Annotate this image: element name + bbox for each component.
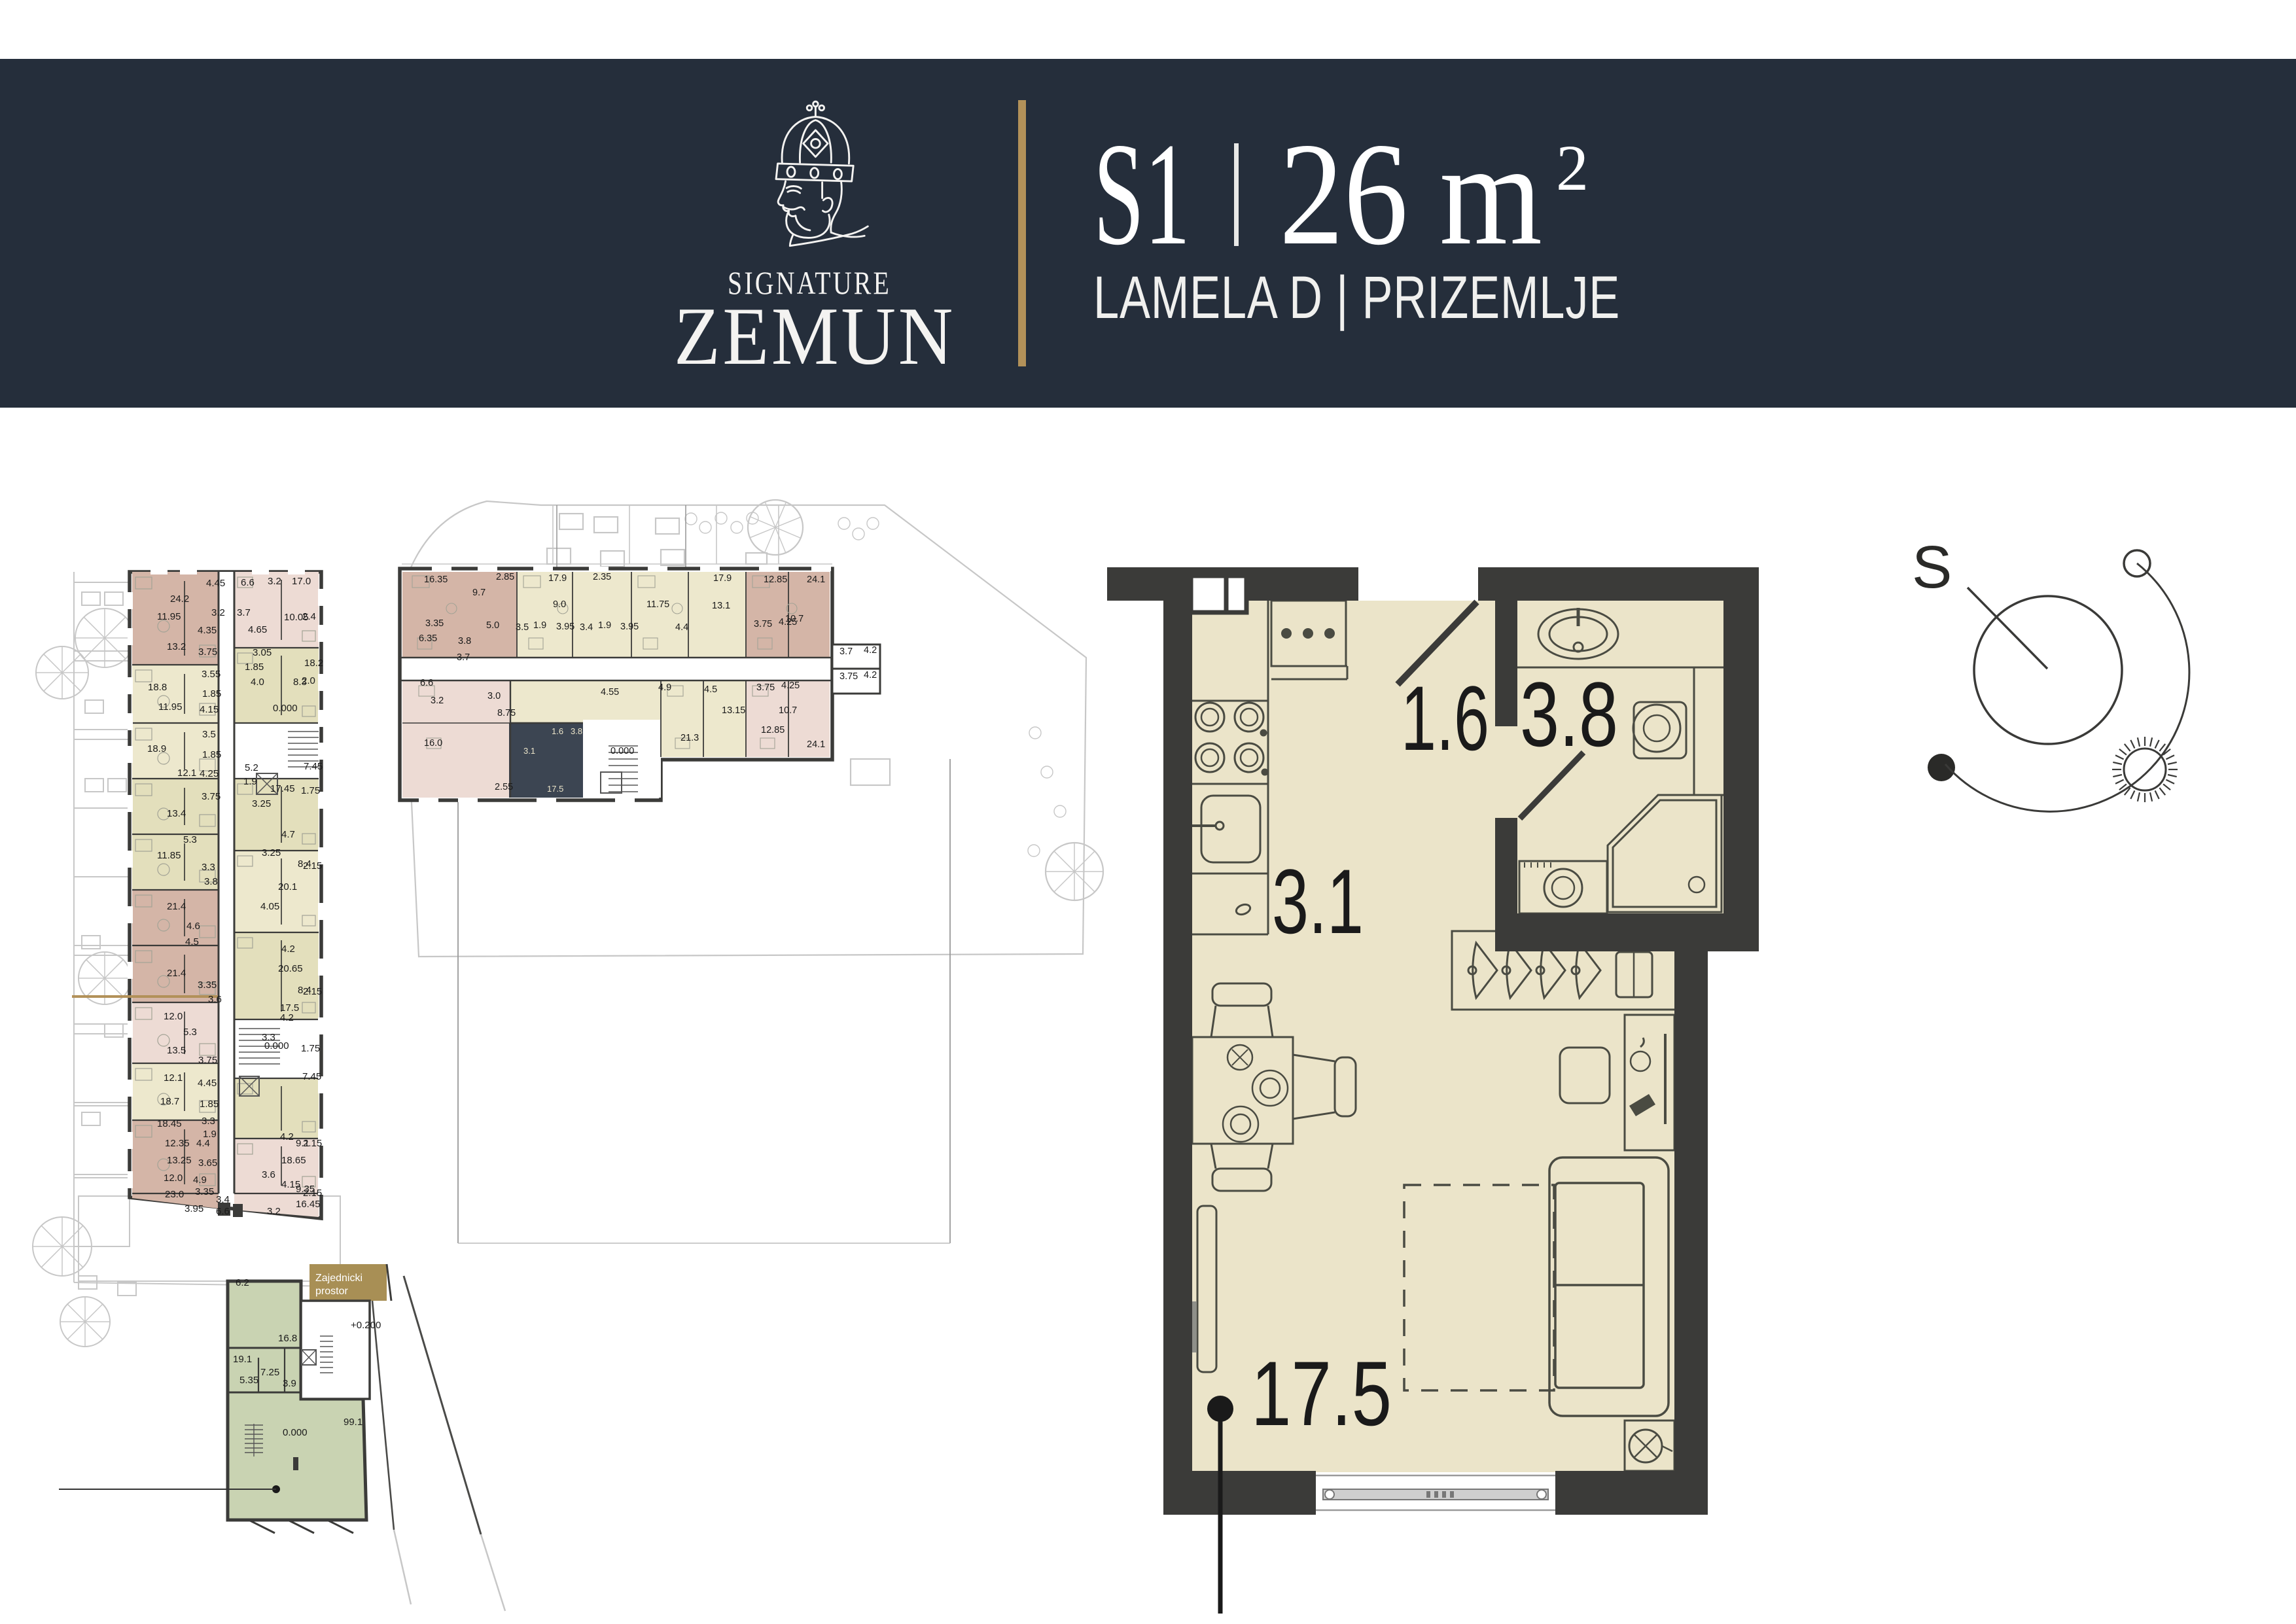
svg-text:3.8: 3.8 — [571, 726, 582, 736]
svg-text:3.35: 3.35 — [195, 1186, 214, 1197]
svg-text:17.0: 17.0 — [292, 576, 311, 587]
svg-text:10.7: 10.7 — [779, 705, 797, 716]
svg-text:3.35: 3.35 — [425, 618, 444, 629]
svg-text:19.1: 19.1 — [233, 1354, 252, 1365]
svg-text:3.4: 3.4 — [580, 622, 593, 633]
svg-text:7.25: 7.25 — [260, 1367, 279, 1378]
svg-text:2.15: 2.15 — [303, 986, 322, 997]
svg-text:13.4: 13.4 — [167, 808, 186, 819]
svg-text:prostor: prostor — [315, 1286, 348, 1297]
svg-text:4.2: 4.2 — [864, 645, 877, 656]
svg-text:5.0: 5.0 — [486, 620, 499, 631]
svg-text:13.2: 13.2 — [167, 641, 186, 652]
svg-text:16.45: 16.45 — [296, 1199, 321, 1210]
svg-text:12.35: 12.35 — [165, 1138, 190, 1149]
svg-text:17.5: 17.5 — [280, 1002, 299, 1014]
svg-text:18.7: 18.7 — [160, 1096, 179, 1107]
svg-text:8.75: 8.75 — [497, 708, 516, 718]
svg-text:3.3: 3.3 — [202, 1116, 215, 1127]
svg-text:4.9: 4.9 — [658, 682, 671, 693]
svg-text:3.25: 3.25 — [252, 798, 271, 809]
svg-text:3.6: 3.6 — [262, 1169, 275, 1180]
svg-text:3.2: 3.2 — [431, 696, 444, 706]
svg-text:3.95: 3.95 — [620, 622, 639, 632]
svg-text:9.7: 9.7 — [472, 588, 486, 598]
svg-text:4.9: 4.9 — [193, 1174, 207, 1186]
svg-text:4.0: 4.0 — [251, 677, 264, 688]
svg-text:3.9: 3.9 — [283, 1378, 296, 1389]
svg-text:3.95: 3.95 — [556, 622, 574, 632]
svg-text:3.6: 3.6 — [208, 994, 222, 1005]
svg-text:3.3: 3.3 — [202, 862, 215, 873]
svg-text:3.75: 3.75 — [756, 682, 775, 693]
svg-text:Zajednicki: Zajednicki — [315, 1273, 362, 1284]
svg-text:3.1: 3.1 — [1272, 850, 1364, 953]
svg-text:S1: S1 — [1093, 112, 1190, 275]
svg-text:2: 2 — [1556, 132, 1589, 204]
svg-text:LAMELA D | PRIZEMLJE: LAMELA D | PRIZEMLJE — [1093, 264, 1620, 331]
svg-text:3.65: 3.65 — [198, 1157, 217, 1169]
svg-text:4.2: 4.2 — [280, 1131, 294, 1142]
svg-text:0.000: 0.000 — [273, 703, 298, 714]
svg-text:12.0: 12.0 — [164, 1173, 183, 1184]
svg-text:3.4: 3.4 — [216, 1194, 230, 1205]
svg-text:3.2: 3.2 — [267, 1206, 281, 1217]
svg-text:12.85: 12.85 — [764, 574, 787, 585]
svg-text:4.45: 4.45 — [198, 1078, 217, 1089]
svg-text:2.85: 2.85 — [496, 572, 514, 582]
svg-text:18.65: 18.65 — [281, 1155, 306, 1166]
svg-text:1.6: 1.6 — [552, 726, 563, 736]
svg-text:4.2: 4.2 — [280, 1012, 294, 1023]
svg-text:18.9: 18.9 — [147, 743, 166, 754]
svg-text:m: m — [1439, 112, 1542, 275]
svg-text:3.05: 3.05 — [253, 647, 272, 658]
svg-text:2.15: 2.15 — [303, 860, 322, 872]
svg-text:20.1: 20.1 — [278, 881, 297, 892]
svg-text:13.25: 13.25 — [167, 1155, 192, 1166]
svg-text:5.35: 5.35 — [239, 1375, 258, 1386]
svg-text:1.85: 1.85 — [202, 688, 221, 699]
svg-text:16.35: 16.35 — [424, 574, 448, 585]
svg-text:S: S — [1912, 534, 1952, 601]
svg-text:4.2: 4.2 — [864, 670, 877, 680]
svg-text:0.000: 0.000 — [610, 746, 634, 756]
svg-text:24.1: 24.1 — [807, 739, 825, 750]
svg-text:ZEMUN: ZEMUN — [674, 291, 955, 382]
svg-text:12.1: 12.1 — [164, 1072, 183, 1084]
svg-text:3.7: 3.7 — [839, 646, 853, 657]
svg-text:4.35: 4.35 — [198, 625, 217, 636]
svg-text:5.3: 5.3 — [183, 834, 197, 845]
svg-text:4.7: 4.7 — [281, 829, 295, 840]
svg-text:3.1: 3.1 — [523, 746, 535, 756]
svg-text:3.7: 3.7 — [457, 652, 470, 663]
svg-text:4.05: 4.05 — [260, 901, 279, 912]
svg-text:2.15: 2.15 — [303, 1138, 322, 1149]
svg-text:3.95: 3.95 — [185, 1203, 203, 1214]
svg-text:1.85: 1.85 — [200, 1099, 219, 1110]
svg-text:3.0: 3.0 — [487, 691, 501, 701]
svg-text:3.35: 3.35 — [198, 980, 217, 991]
svg-text:7.45: 7.45 — [302, 1071, 321, 1082]
svg-text:6.6: 6.6 — [216, 1206, 230, 1217]
svg-text:1.9: 1.9 — [243, 776, 257, 787]
svg-text:4.5: 4.5 — [185, 936, 199, 947]
svg-text:4.25: 4.25 — [200, 768, 219, 779]
svg-text:3.8: 3.8 — [1520, 663, 1618, 766]
svg-text:3.75: 3.75 — [839, 671, 858, 682]
svg-text:16.8: 16.8 — [278, 1333, 297, 1344]
svg-text:5.2: 5.2 — [245, 762, 258, 773]
svg-text:18.45: 18.45 — [157, 1118, 182, 1129]
svg-text:24.1: 24.1 — [807, 574, 825, 585]
svg-text:3.5: 3.5 — [516, 622, 529, 633]
svg-text:1.6: 1.6 — [1401, 667, 1489, 769]
svg-text:18.2: 18.2 — [304, 658, 323, 669]
svg-text:3.75: 3.75 — [198, 1055, 217, 1066]
svg-text:3.5: 3.5 — [202, 729, 216, 740]
svg-text:3.8: 3.8 — [458, 636, 471, 646]
svg-text:2.35: 2.35 — [593, 572, 611, 582]
svg-text:4.25: 4.25 — [779, 617, 797, 627]
svg-text:99.1: 99.1 — [344, 1417, 362, 1428]
svg-text:20.65: 20.65 — [278, 963, 303, 974]
svg-text:11.95: 11.95 — [157, 611, 181, 622]
svg-text:4.65: 4.65 — [248, 624, 267, 635]
svg-text:3.75: 3.75 — [198, 646, 217, 658]
svg-text:12.85: 12.85 — [761, 725, 785, 735]
svg-text:4.5: 4.5 — [704, 684, 717, 695]
svg-text:11.75: 11.75 — [646, 599, 669, 610]
svg-text:3.2: 3.2 — [211, 607, 225, 618]
svg-text:2.55: 2.55 — [495, 782, 513, 792]
svg-text:9.0: 9.0 — [553, 599, 566, 610]
svg-text:1.9: 1.9 — [533, 620, 546, 631]
svg-text:3.75: 3.75 — [754, 619, 772, 629]
svg-text:16.0: 16.0 — [424, 738, 442, 749]
svg-text:23.0: 23.0 — [165, 1189, 184, 1200]
svg-text:2.15: 2.15 — [303, 1188, 322, 1199]
svg-text:4.2: 4.2 — [281, 944, 295, 955]
svg-text:13.5: 13.5 — [167, 1045, 186, 1056]
svg-text:6.2: 6.2 — [236, 1277, 249, 1288]
svg-text:17.45: 17.45 — [270, 783, 295, 794]
svg-text:5.3: 5.3 — [183, 1027, 197, 1038]
svg-text:4.45: 4.45 — [206, 578, 225, 589]
svg-text:11.95: 11.95 — [158, 701, 182, 713]
svg-text:1.85: 1.85 — [202, 749, 221, 760]
svg-text:17.5: 17.5 — [547, 784, 563, 794]
svg-text:4.25: 4.25 — [781, 680, 800, 691]
svg-text:21.3: 21.3 — [680, 733, 699, 743]
svg-text:6.35: 6.35 — [419, 633, 437, 644]
svg-text:4.4: 4.4 — [675, 622, 688, 633]
svg-text:0.000: 0.000 — [264, 1040, 289, 1051]
svg-text:6.6: 6.6 — [420, 678, 433, 688]
svg-text:4.15: 4.15 — [200, 704, 219, 715]
svg-text:26: 26 — [1279, 112, 1408, 275]
svg-text:17.9: 17.9 — [548, 573, 567, 584]
svg-text:4.4: 4.4 — [196, 1138, 210, 1149]
svg-text:1.85: 1.85 — [245, 662, 264, 673]
svg-text:2.0: 2.0 — [302, 675, 315, 686]
svg-text:3.7: 3.7 — [237, 607, 251, 618]
svg-text:0.000: 0.000 — [283, 1427, 308, 1438]
svg-text:1.9: 1.9 — [598, 620, 611, 631]
svg-text:12.1: 12.1 — [177, 768, 196, 779]
svg-text:3.55: 3.55 — [202, 669, 221, 680]
svg-text:3.2: 3.2 — [268, 576, 281, 587]
svg-text:24.2: 24.2 — [170, 593, 189, 605]
svg-text:18.8: 18.8 — [148, 682, 167, 693]
svg-text:2.4: 2.4 — [302, 611, 316, 622]
svg-text:+0.200: +0.200 — [351, 1320, 381, 1331]
svg-text:13.1: 13.1 — [712, 601, 730, 611]
svg-text:6.6: 6.6 — [241, 577, 255, 588]
svg-text:1.75: 1.75 — [301, 1043, 320, 1054]
svg-text:11.85: 11.85 — [157, 850, 181, 861]
svg-text:17.5: 17.5 — [1251, 1342, 1392, 1445]
svg-text:21.4: 21.4 — [167, 968, 186, 979]
svg-text:17.9: 17.9 — [713, 573, 732, 584]
svg-text:3.75: 3.75 — [202, 791, 221, 802]
svg-text:1.75: 1.75 — [301, 785, 320, 796]
svg-text:13.15: 13.15 — [722, 705, 745, 716]
svg-text:21.4: 21.4 — [167, 901, 186, 912]
svg-text:3.8: 3.8 — [204, 876, 218, 887]
svg-text:3.25: 3.25 — [262, 847, 281, 858]
svg-text:4.55: 4.55 — [601, 687, 619, 697]
svg-text:12.0: 12.0 — [164, 1011, 183, 1022]
svg-text:4.6: 4.6 — [186, 921, 200, 932]
svg-text:7.45: 7.45 — [304, 761, 323, 772]
